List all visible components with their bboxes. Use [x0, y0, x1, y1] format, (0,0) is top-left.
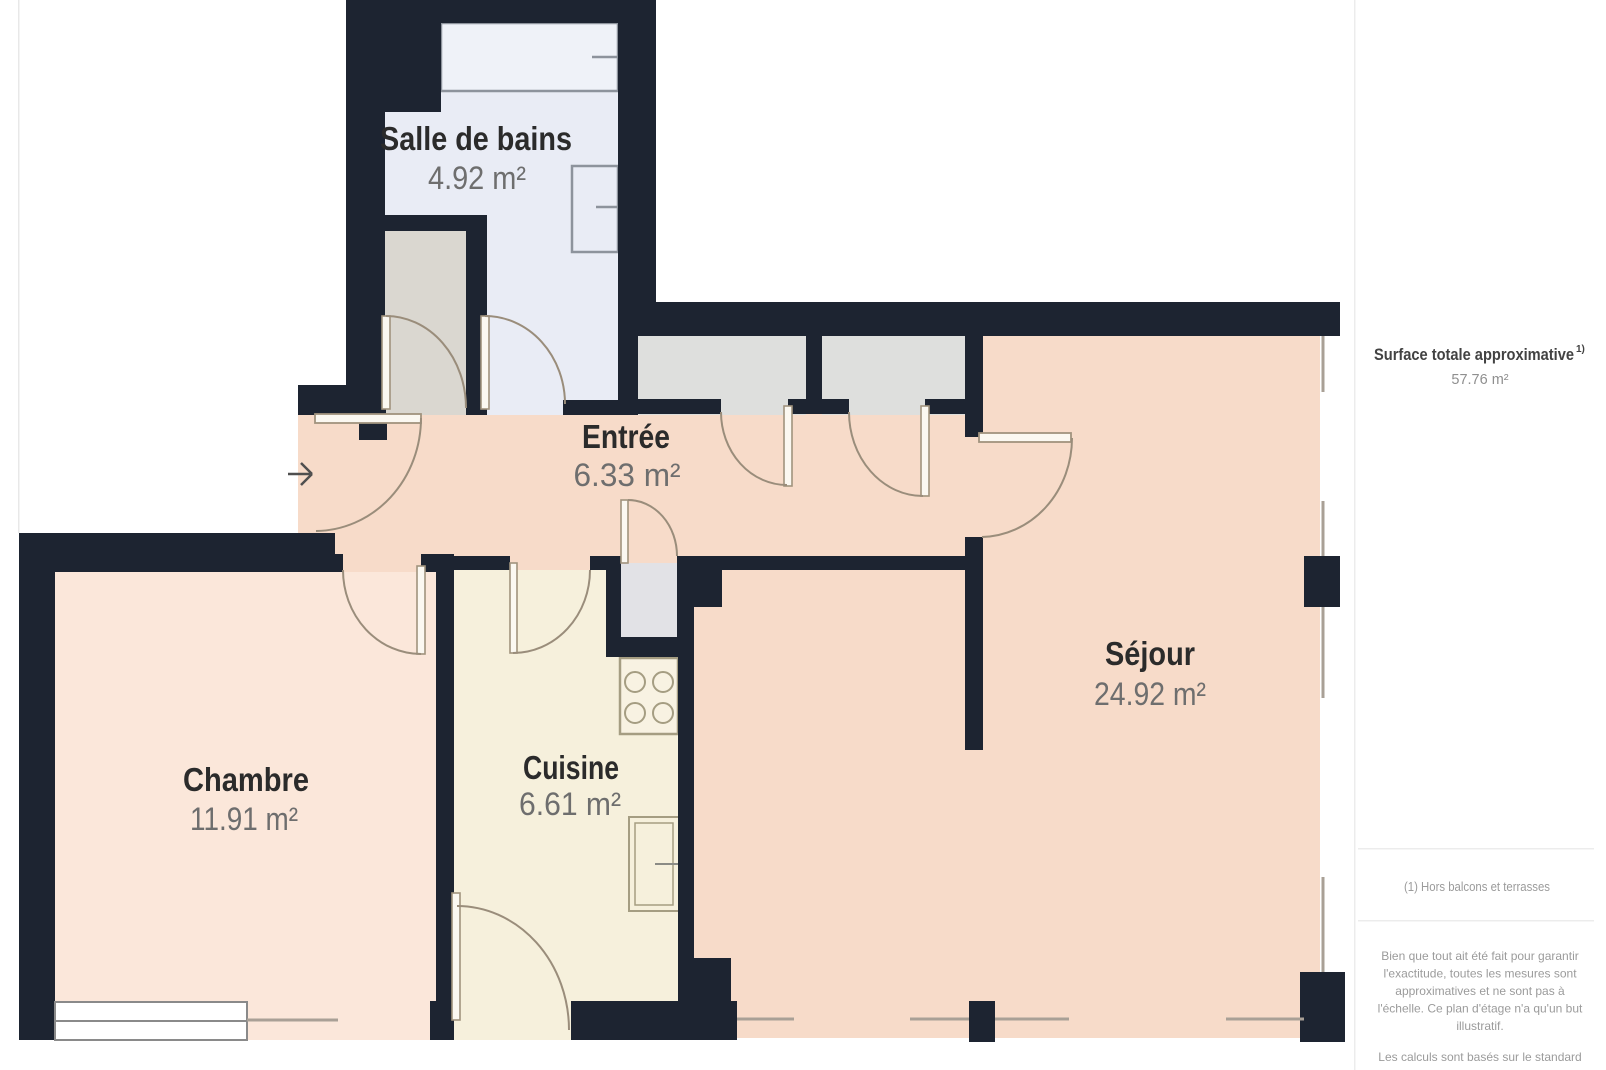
svg-text:Séjour: Séjour [1105, 635, 1195, 672]
svg-text:6.33 m²: 6.33 m² [574, 457, 681, 493]
svg-text:Surface totale approximative: Surface totale approximative [1374, 346, 1574, 364]
svg-text:57.76 m²: 57.76 m² [1451, 372, 1508, 388]
svg-text:4.92 m²: 4.92 m² [428, 160, 526, 196]
svg-text:Chambre: Chambre [183, 761, 309, 798]
svg-text:l'échelle. Ce plan d'étage n'a: l'échelle. Ce plan d'étage n'a qu'un but [1378, 1002, 1583, 1016]
svg-text:6.61 m²: 6.61 m² [519, 786, 621, 822]
svg-text:24.92 m²: 24.92 m² [1094, 676, 1206, 712]
svg-text:Salle de bains: Salle de bains [380, 120, 572, 157]
svg-text:11.91 m²: 11.91 m² [190, 801, 298, 837]
svg-text:Bien que tout ait été fait pou: Bien que tout ait été fait pour garantir [1381, 949, 1578, 963]
svg-text:l'exactitude, toutes les mesur: l'exactitude, toutes les mesures sont [1383, 967, 1577, 981]
svg-text:Entrée: Entrée [582, 418, 670, 455]
svg-text:(1) Hors balcons et terrasses: (1) Hors balcons et terrasses [1404, 880, 1550, 894]
svg-text:approximatives et ne sont pas: approximatives et ne sont pas à [1395, 984, 1565, 998]
svg-text:Cuisine: Cuisine [523, 749, 619, 786]
svg-text:1): 1) [1576, 344, 1585, 355]
svg-text:Les calculs sont basés sur le: Les calculs sont basés sur le standard [1378, 1050, 1581, 1064]
svg-text:illustratif.: illustratif. [1456, 1019, 1503, 1033]
